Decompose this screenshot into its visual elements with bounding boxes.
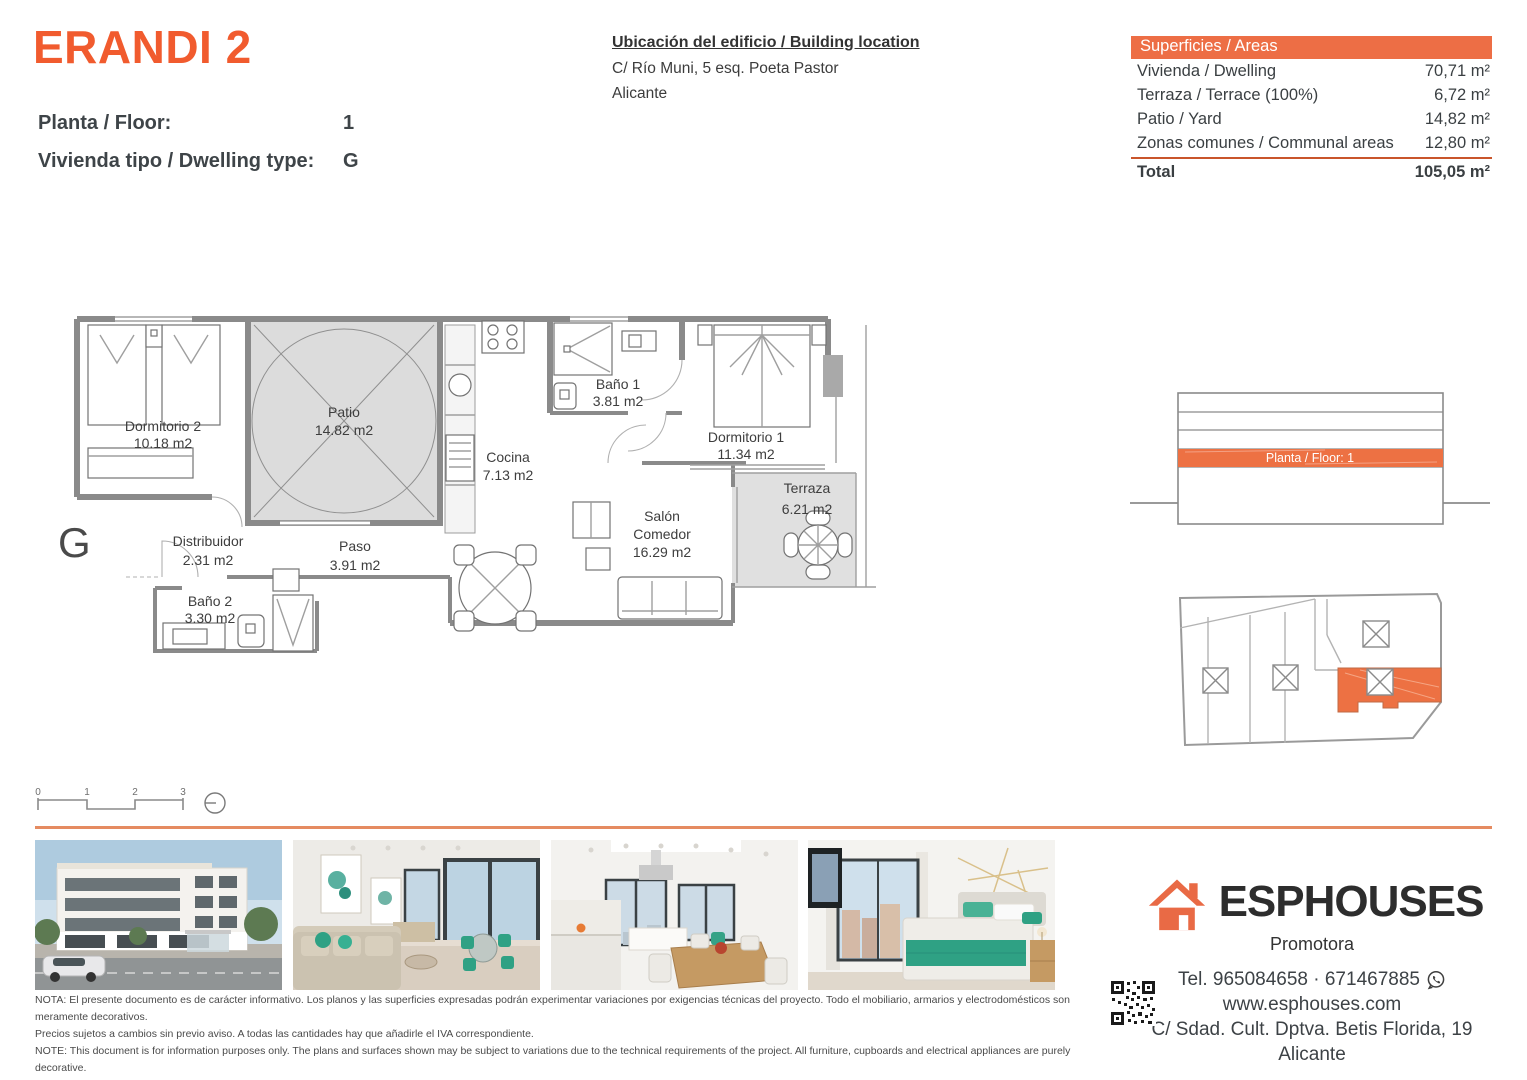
room-label-bedroom1: Dormitorio 1 [708,429,784,445]
areas-row-dwelling: Vivienda / Dwelling 70,71 m² [1131,59,1492,83]
note-line-es-2: Precios sujetos a cambios sin previo avi… [35,1026,1097,1043]
dwelling-type-row: Vivienda tipo / Dwelling type: G [38,150,383,173]
room-area-bedroom1: 11.34 m2 [717,446,775,462]
building-location-block: Ubicación del edificio / Building locati… [612,30,920,106]
scale-bar: 0 1 2 3 [30,783,260,823]
north-compass-icon [205,793,225,813]
separator-line [35,826,1492,829]
room-label-hall: Distribuidor [173,533,244,549]
photo-building-exterior [35,840,282,990]
floor-plan: Dormitorio 2 10.18 m2 Patio 14.82 m2 Coc… [30,305,890,670]
scale-tick-1: 1 [84,787,90,798]
room-label-bedroom2: Dormitorio 2 [125,418,201,434]
areas-row-value: 70,71 m² [1425,60,1490,82]
room-area-living: 16.29 m2 [633,544,692,560]
phone-numbers: Tel. 965084658 · 671467885 [1178,967,1420,992]
photo-kitchen-dining [551,840,798,990]
floorplan-sheet: ERANDI 2 Planta / Floor: 1 Vivienda tipo… [0,0,1527,1080]
room-label-living2: Comedor [633,526,691,542]
room-area-patio: 14.82 m2 [315,422,374,438]
note-line-es-1: NOTA: El presente documento es de caráct… [35,992,1097,1026]
areas-table-header: Superficies / Areas [1131,36,1492,59]
room-area-kitchen: 7.13 m2 [483,467,534,483]
office-city: Alicante [1100,1042,1524,1067]
website-link[interactable]: www.esphouses.com [1100,992,1524,1017]
room-label-terrace: Terraza [784,480,831,496]
room-label-patio: Patio [328,404,360,420]
esphouses-house-icon [1141,872,1213,932]
areas-row-label: Zonas comunes / Communal areas [1137,132,1394,154]
room-area-bedroom2: 10.18 m2 [134,435,193,451]
living-room-furniture [454,502,722,631]
floor-label: Planta / Floor: [38,112,343,135]
areas-row-value: 14,82 m² [1425,108,1490,130]
building-location-street: C/ Río Muni, 5 esq. Poeta Pastor [612,56,920,81]
qr-code [1110,980,1156,1026]
scale-tick-0: 0 [35,787,41,798]
brand-block: ESPHOUSES Promotora Tel. 965084658 · 671… [1100,872,1524,1067]
dwelling-type-label: Vivienda tipo / Dwelling type: [38,150,343,173]
room-label-kitchen: Cocina [486,449,530,465]
building-location-title: Ubicación del edificio / Building locati… [612,30,920,56]
room-label-corridor: Paso [339,538,371,554]
floor-value: 1 [343,112,354,135]
room-area-terrace: 6.21 m2 [782,501,833,517]
areas-total-value: 105,05 m² [1415,161,1490,183]
areas-row-label: Terraza / Terrace (100%) [1137,84,1318,106]
building-elevation-diagram: Planta / Floor: 1 [1125,388,1495,533]
scale-tick-2: 2 [132,787,138,798]
photo-bedroom [808,840,1055,990]
office-address: C/ Sdad. Cult. Dptva. Betis Florida, 19 [1100,1017,1524,1042]
scale-tick-3: 3 [180,787,186,798]
areas-row-value: 12,80 m² [1425,132,1490,154]
dwelling-type-value: G [343,150,359,173]
kitchen-furniture [445,321,524,533]
areas-row-total: Total 105,05 m² [1131,157,1492,184]
areas-row-patio: Patio / Yard 14,82 m² [1131,107,1492,131]
room-label-bathroom2: Baño 2 [188,593,233,609]
room-label-bathroom1: Baño 1 [596,376,641,392]
areas-row-terrace: Terraza / Terrace (100%) 6,72 m² [1131,83,1492,107]
areas-row-label: Vivienda / Dwelling [1137,60,1276,82]
room-area-bathroom1: 3.81 m2 [593,393,644,409]
site-plan-diagram [1155,575,1495,765]
whatsapp-icon [1426,970,1446,990]
areas-total-label: Total [1137,161,1175,183]
room-label-living: Salón [644,508,680,524]
bedroom1-furniture [698,325,826,427]
bedroom2-furniture [88,325,220,478]
areas-row-label: Patio / Yard [1137,108,1222,130]
floor-row: Planta / Floor: 1 [38,112,383,135]
project-title: ERANDI 2 [33,20,252,74]
note-line-en-1: NOTE: This document is for information p… [35,1043,1097,1077]
balconies [65,878,180,931]
room-area-corridor: 3.91 m2 [330,557,381,573]
dwelling-type-letter: G [58,519,91,566]
highlighted-floor-label: Planta / Floor: 1 [1266,451,1354,465]
photo-living-room [293,840,540,990]
brand-name: ESPHOUSES [1219,877,1484,927]
brand-subtitle: Promotora [1100,934,1524,955]
building-location-city: Alicante [612,81,920,106]
areas-table: Superficies / Areas Vivienda / Dwelling … [1131,36,1492,184]
areas-row-communal: Zonas comunes / Communal areas 12,80 m² [1131,131,1492,155]
room-area-bathroom2: 3.30 m2 [185,610,236,626]
disclaimer-notes: NOTA: El presente documento es de caráct… [35,992,1097,1080]
areas-row-value: 6,72 m² [1434,84,1490,106]
room-area-hall: 2.31 m2 [183,552,234,568]
